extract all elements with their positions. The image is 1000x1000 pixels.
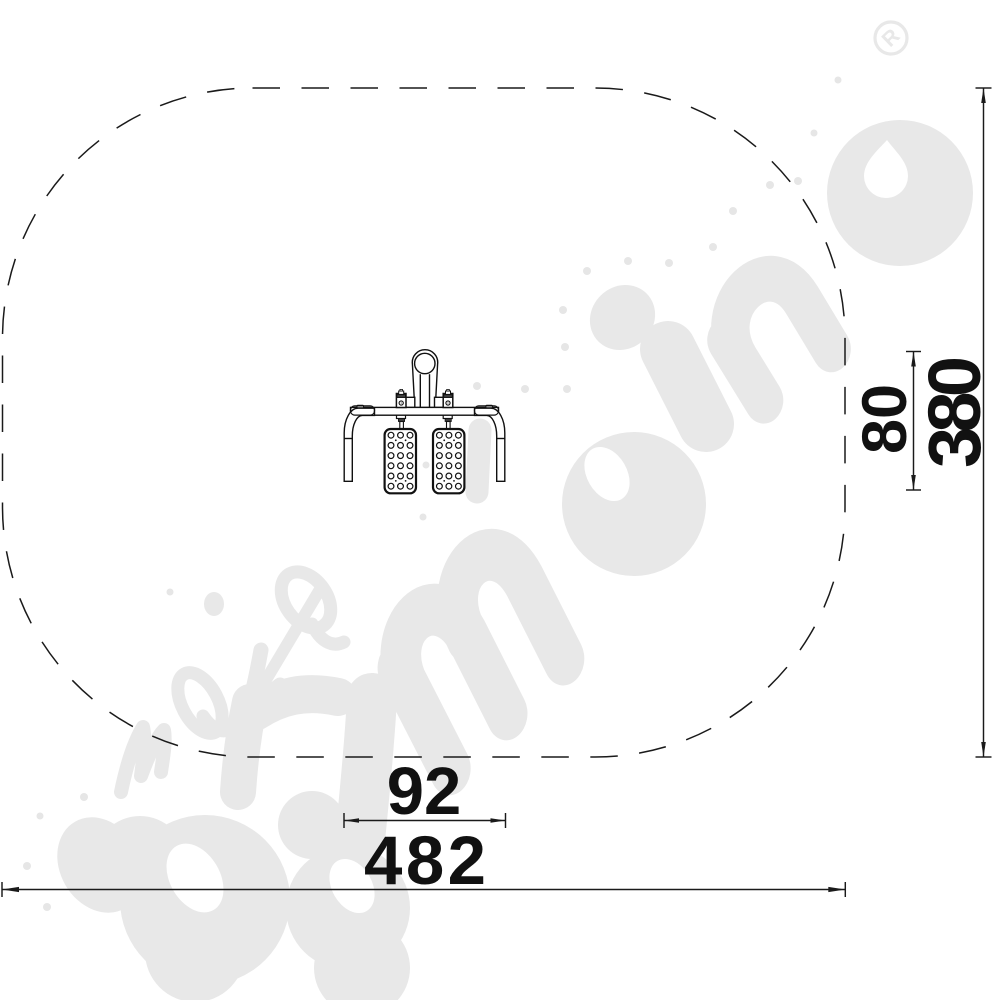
svg-text:80: 80	[850, 384, 920, 454]
svg-text:92: 92	[387, 754, 462, 829]
svg-text:482: 482	[364, 822, 486, 899]
svg-text:R: R	[878, 24, 905, 51]
svg-text:380: 380	[913, 356, 996, 468]
